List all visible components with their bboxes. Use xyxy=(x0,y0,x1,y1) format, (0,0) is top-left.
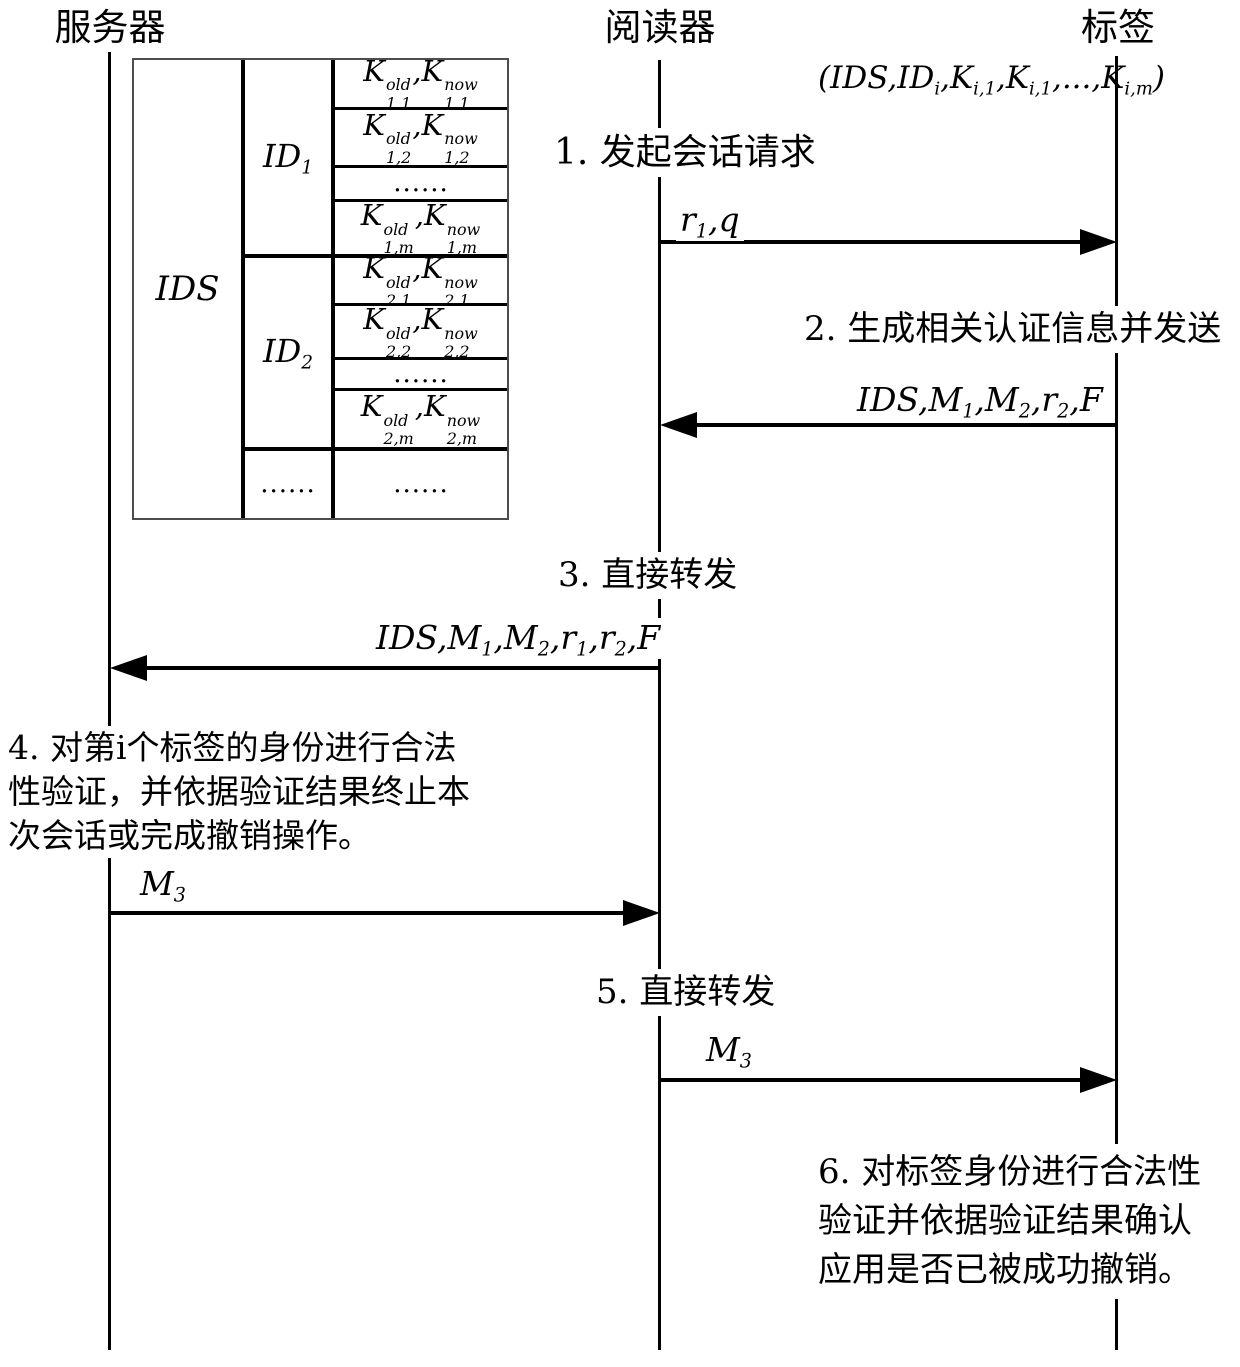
step-2-label: 2. 生成相关认证信息并发送 xyxy=(798,306,1227,353)
key-pair: Kold1,m,Know1,m xyxy=(361,202,481,258)
id2-label: ID2 xyxy=(263,332,313,373)
table-column-ids: IDS xyxy=(134,60,245,518)
tag-secrets-tuple: (IDS,IDi,Ki,1,Ki,1,...,Ki,m) xyxy=(818,60,1165,98)
note-line: 次会话或完成撤销操作。 xyxy=(8,814,470,858)
arrowhead-right-icon xyxy=(1080,1067,1117,1093)
table-ids-label: IDS xyxy=(156,269,220,309)
note-line: 4. 对第i个标签的身份进行合法 xyxy=(8,726,470,770)
key-ellipsis: ...... xyxy=(393,469,449,499)
step-4-note: 4. 对第i个标签的身份进行合法 性验证，并依据验证结果终止本 次会话或完成撤销… xyxy=(8,726,480,858)
message-4-arrow xyxy=(110,900,660,926)
key-pair: Kold2,2,Know2,2 xyxy=(363,306,478,361)
id-ellipsis: ...... xyxy=(260,469,316,499)
key-ellipsis: ...... xyxy=(393,168,449,198)
message-1-payload: r1,q xyxy=(676,200,744,241)
step-1-label: 1. 发起会话请求 xyxy=(548,128,822,177)
message-3-payload: IDS,M1,M2,r1,r2,F xyxy=(372,618,664,659)
arrowhead-right-icon xyxy=(1080,229,1117,255)
key-pair: Kold2,m,Know2,m xyxy=(361,391,481,449)
step-5-label: 5. 直接转发 xyxy=(590,969,781,1016)
actor-label-tag: 标签 xyxy=(1081,8,1155,49)
table-cell-key-ellipsis: ...... xyxy=(335,360,507,391)
id1-label: ID1 xyxy=(263,137,313,178)
table-cell-id-ellipsis: ...... xyxy=(245,451,331,518)
table-column-id: ID1 ID2 ...... xyxy=(245,60,335,518)
message-5-payload: M3 xyxy=(702,1030,756,1071)
table-cell-key: Kold1,m,Know1,m xyxy=(335,202,507,259)
key-pair: Kold1,2,Know1,2 xyxy=(363,110,478,168)
table-cell-key: Kold2,1,Know2,1 xyxy=(335,258,507,306)
key-pair: Kold2,1,Know2,1 xyxy=(363,258,478,306)
table-cell-key: Kold1,2,Know1,2 xyxy=(335,110,507,168)
table-cell-key: Kold1,1,Know1,1 xyxy=(335,60,507,110)
arrow-shaft xyxy=(110,911,638,915)
note-line: 应用是否已被成功撤销。 xyxy=(818,1246,1201,1295)
arrowhead-left-icon xyxy=(110,655,147,681)
message-2-payload: IDS,M1,M2,r2,F xyxy=(853,380,1107,421)
actor-label-reader: 阅读器 xyxy=(605,8,716,49)
table-cell-key-ellipsis: ...... xyxy=(335,451,507,518)
arrow-shaft xyxy=(682,423,1117,427)
key-pair: Kold1,1,Know1,1 xyxy=(363,60,478,110)
protocol-sequence-diagram: 服务器 阅读器 标签 (IDS,IDi,Ki,1,Ki,1,...,Ki,m) … xyxy=(0,0,1240,1367)
table-cell-key-ellipsis: ...... xyxy=(335,168,507,202)
step-6-note: 6. 对标签身份进行合法性 验证并依据验证结果确认 应用是否已被成功撤销。 xyxy=(810,1144,1209,1299)
note-line: 6. 对标签身份进行合法性 xyxy=(818,1148,1201,1197)
actor-label-server: 服务器 xyxy=(55,8,166,49)
message-4-payload: M3 xyxy=(136,864,190,905)
table-column-keys: Kold1,1,Know1,1 Kold1,2,Know1,2 ...... K… xyxy=(335,60,507,518)
key-ellipsis: ...... xyxy=(393,360,449,389)
arrow-shaft xyxy=(660,1078,1095,1082)
table-cell-key: Kold2,2,Know2,2 xyxy=(335,306,507,361)
step-3-label: 3. 直接转发 xyxy=(552,552,743,599)
table-cell-key: Kold2,m,Know2,m xyxy=(335,391,507,450)
table-cell-id1: ID1 xyxy=(245,60,331,258)
arrowhead-left-icon xyxy=(660,412,697,438)
table-cell-id2: ID2 xyxy=(245,258,331,450)
note-line: 性验证，并依据验证结果终止本 xyxy=(8,770,470,814)
message-5-arrow xyxy=(660,1067,1117,1093)
arrowhead-right-icon xyxy=(623,900,660,926)
arrow-shaft xyxy=(132,666,660,670)
note-line: 验证并依据验证结果确认 xyxy=(818,1197,1201,1246)
server-key-table: IDS ID1 ID2 ...... Kold1,1,Know1,1 Kold1… xyxy=(132,58,509,520)
server-lifeline xyxy=(108,52,111,1350)
